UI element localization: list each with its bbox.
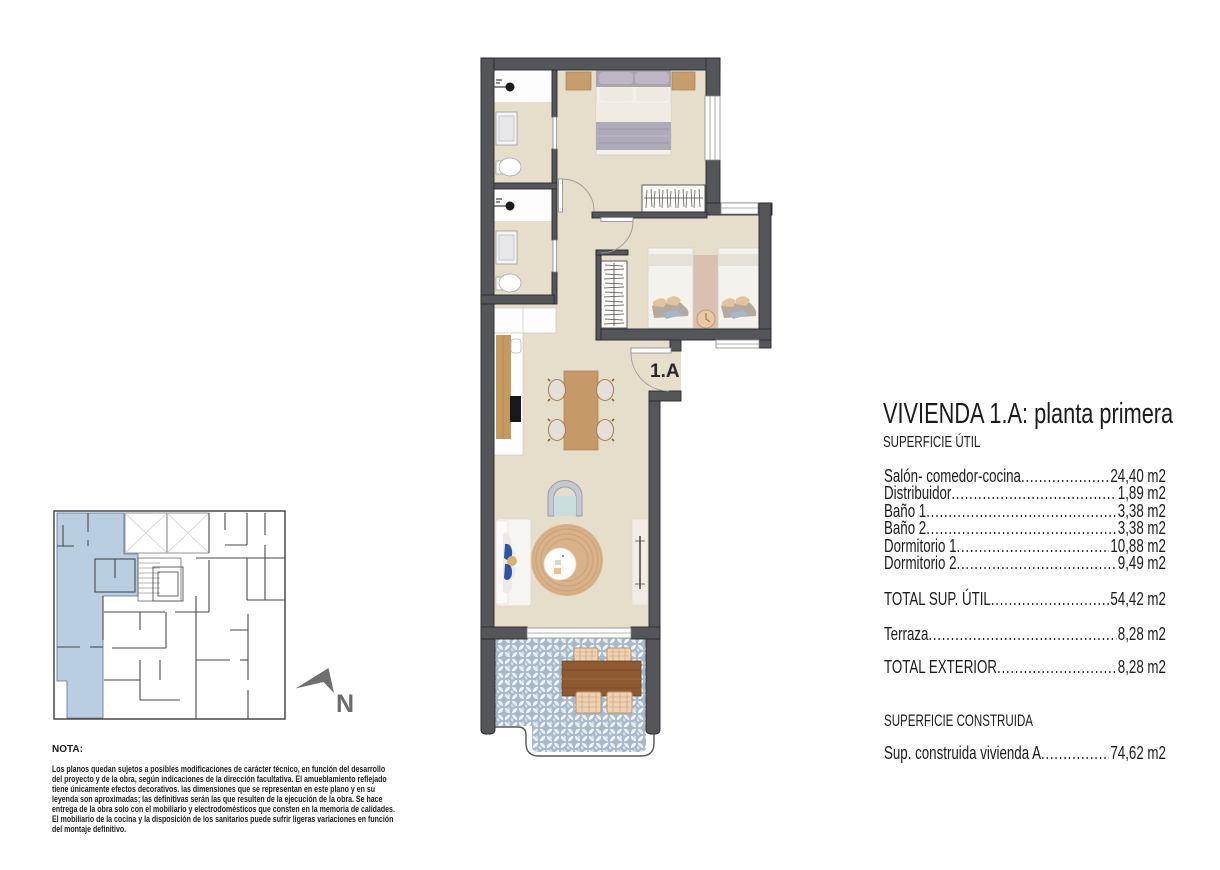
svg-text:N: N [336, 690, 354, 718]
svg-text:1.A: 1.A [650, 361, 680, 382]
